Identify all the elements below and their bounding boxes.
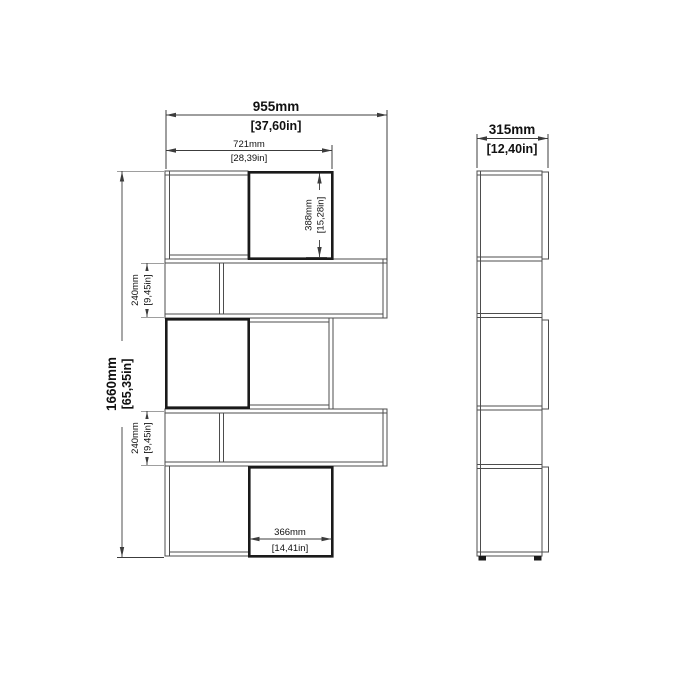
overall-height-mm-label: 1660mm (104, 357, 119, 411)
overall-width-mm-label: 955mm (253, 99, 300, 114)
front-view-thin-lines (165, 171, 387, 556)
overall-height-in-label: [65,35in] (120, 359, 134, 410)
upper-shelf-height-in-label: [9,45in] (143, 274, 154, 305)
upper-shelf-height-mm-label: 240mm (130, 274, 141, 306)
bottom-box-width-in-label: [14,41in] (272, 543, 308, 554)
top-section-height-mm-label: 388mm (304, 199, 315, 231)
dimension-annotations: 955mm [37,60in] 721mm [28,39in] 315mm [1… (104, 99, 548, 558)
lower-shelf-height-mm-label: 240mm (130, 422, 141, 454)
bookcase-dimension-diagram: 955mm [37,60in] 721mm [28,39in] 315mm [1… (0, 0, 700, 700)
lower-shelf-height-in-label: [9,45in] (143, 422, 154, 453)
depth-mm-label: 315mm (489, 122, 536, 137)
top-width-mm-label: 721mm (233, 139, 265, 150)
technical-drawing: 955mm [37,60in] 721mm [28,39in] 315mm [1… (0, 0, 700, 700)
overall-width-in-label: [37,60in] (251, 119, 302, 133)
bottom-box-width-mm-label: 366mm (274, 527, 306, 538)
side-view-thin-lines (477, 171, 549, 556)
top-width-in-label: [28,39in] (231, 153, 267, 164)
top-section-height-in-label: [15,28in] (316, 197, 327, 233)
depth-in-label: [12,40in] (487, 142, 538, 156)
front-view-drawing (165, 171, 387, 556)
side-view-drawing (477, 171, 549, 561)
side-view-feet (479, 556, 542, 561)
